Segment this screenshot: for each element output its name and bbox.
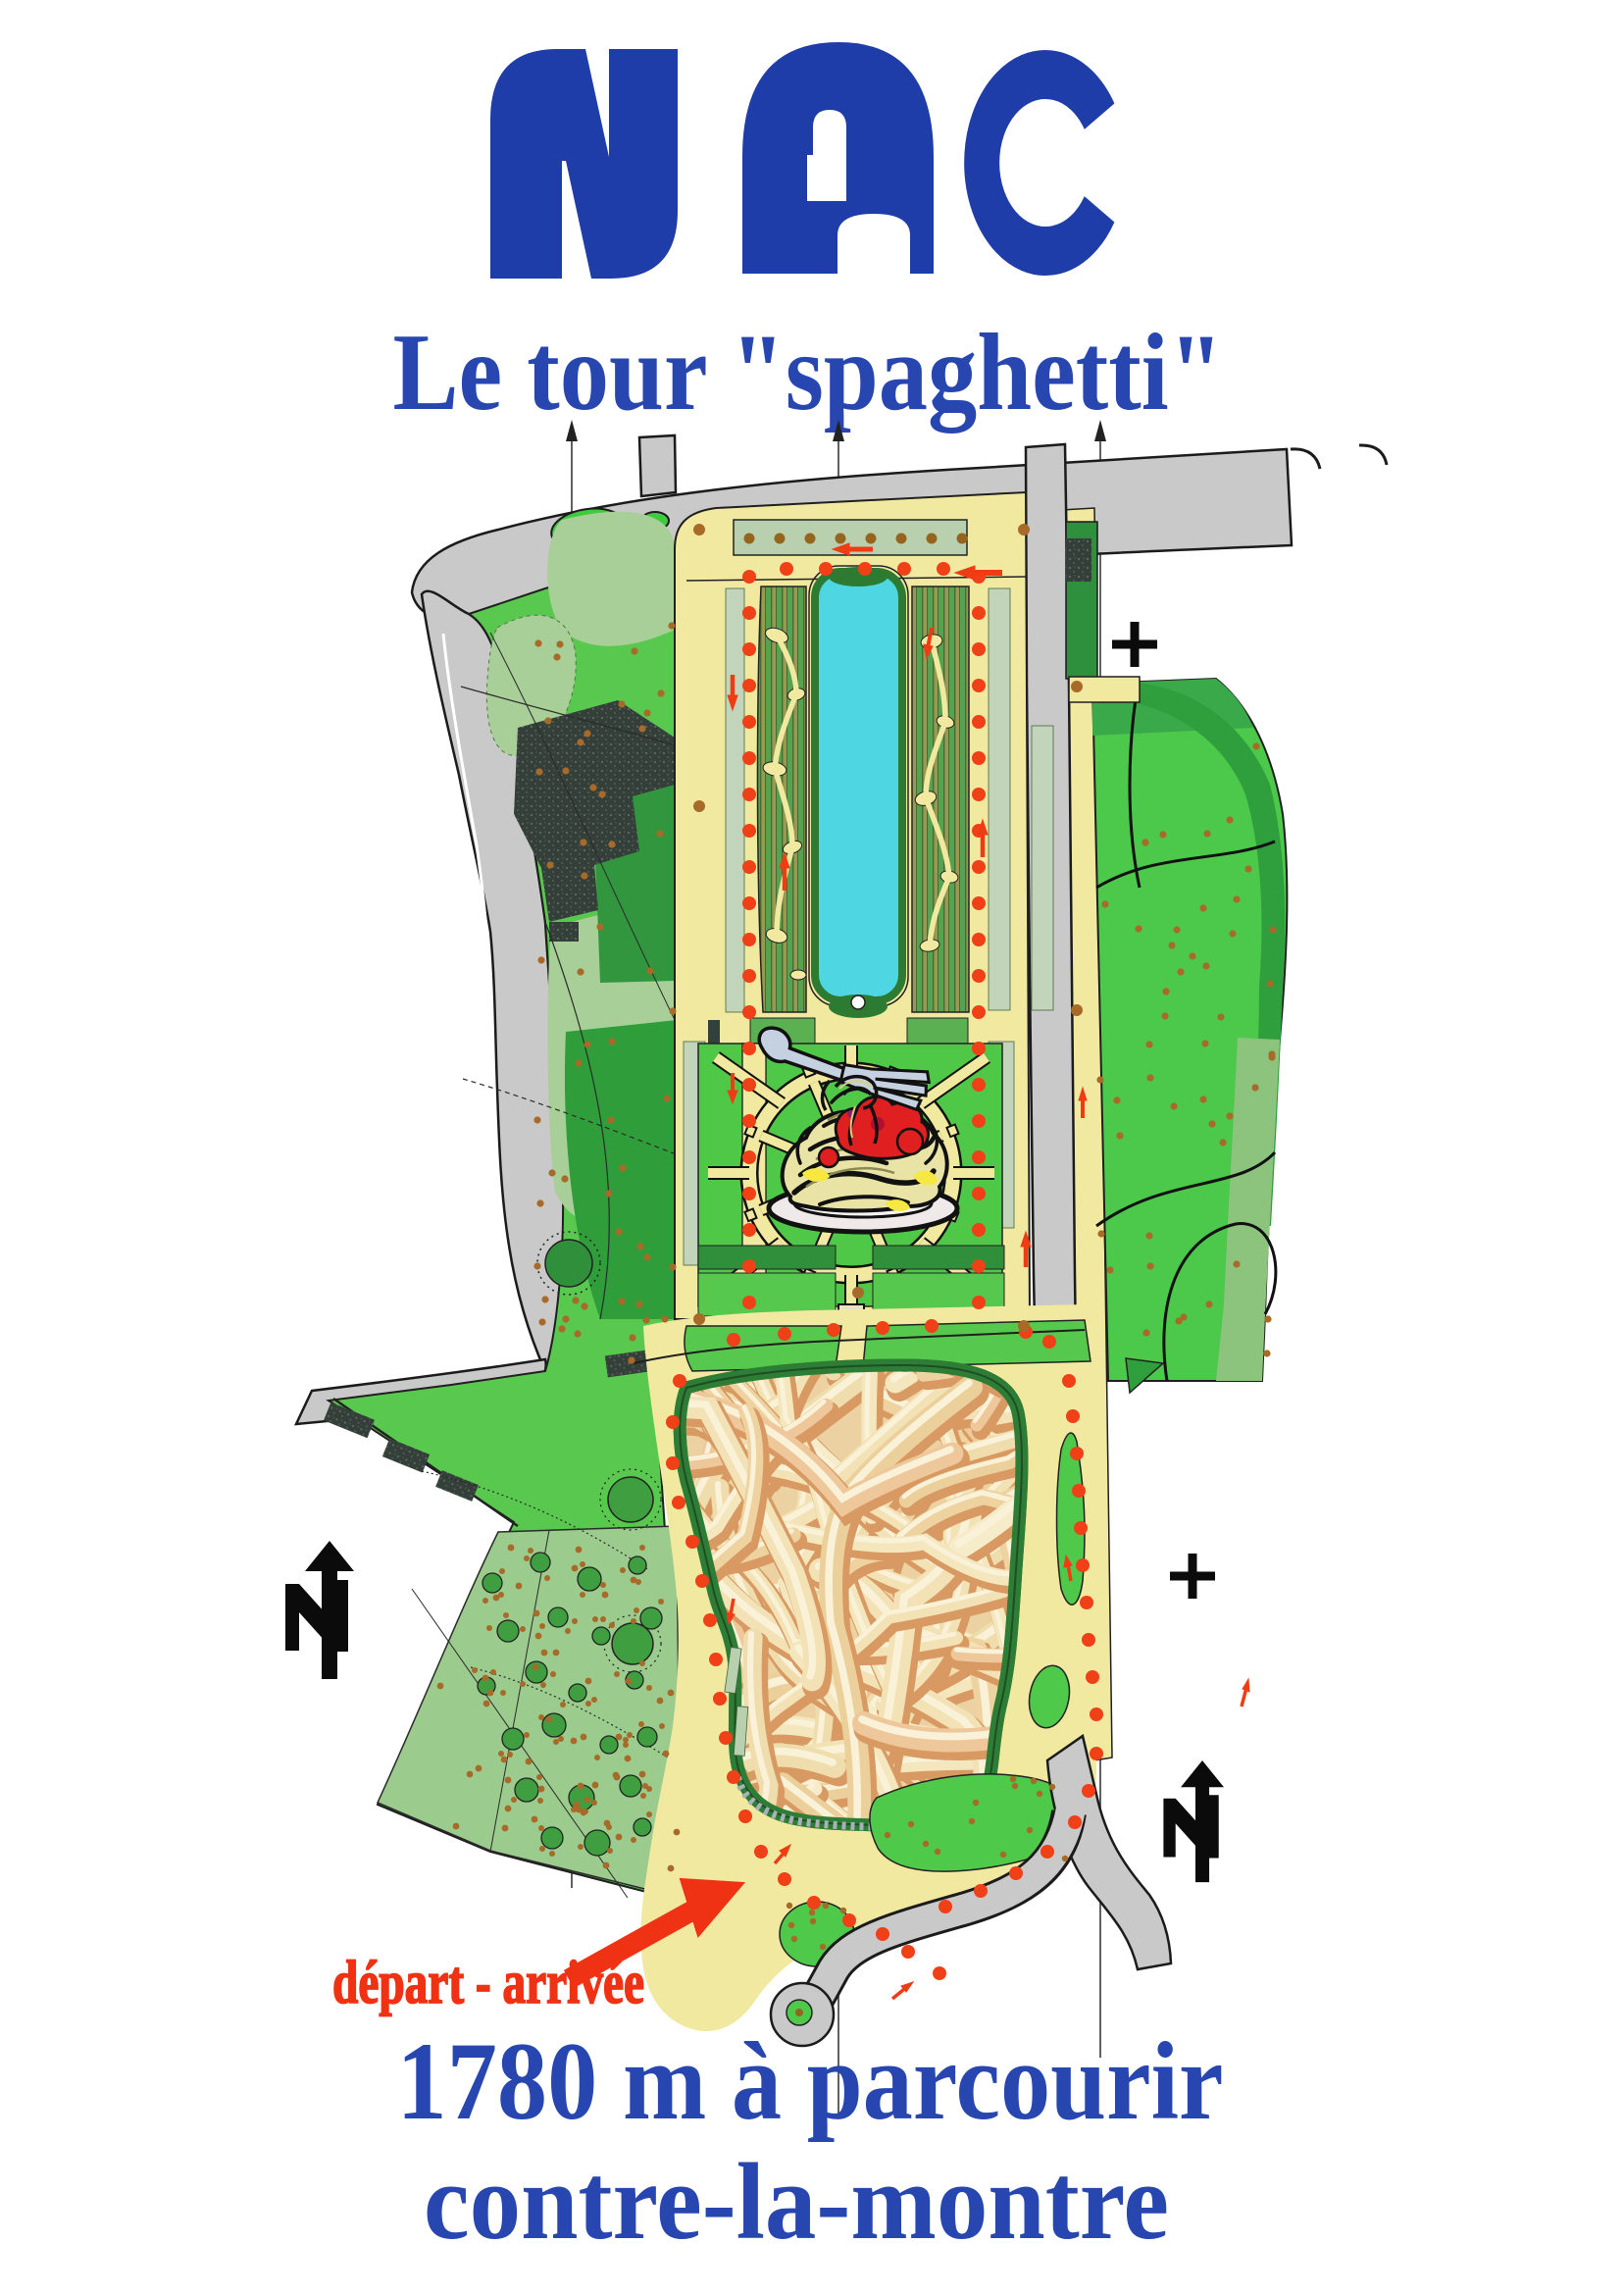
svg-text:contre-la-montre: contre-la-montre	[424, 2142, 1169, 2263]
svg-text:Le tour "spaghetti": Le tour "spaghetti"	[393, 312, 1224, 433]
svg-text:départ - arrivée: départ - arrivée	[332, 1950, 644, 2016]
svg-text:1780 m à parcourir: 1780 m à parcourir	[397, 2020, 1224, 2143]
